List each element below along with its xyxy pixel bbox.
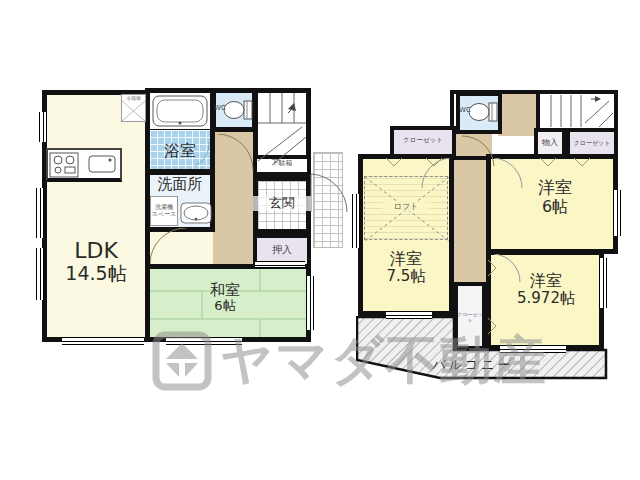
closet-door-chevron-4 [574, 158, 590, 167]
closet-door-chevron-1 [386, 158, 402, 167]
window-room75-bottom [386, 311, 432, 319]
closet-door-chevron-2 [426, 158, 442, 167]
second-floor-plan: WC 物入 クローゼット クローゼット 洋室 6帖 [0, 0, 640, 480]
room5972-name: 洋室 [494, 272, 598, 290]
window-room75-left [352, 194, 360, 248]
wc2-door-arc [462, 134, 496, 168]
room-label-yoshitsu-6: 洋室 6帖 [510, 178, 600, 216]
room6-size: 6帖 [510, 198, 600, 216]
balcony-label: バルコニー [408, 358, 538, 373]
room-label-monoire: 物入 [534, 138, 566, 147]
closet-door-chevron-3 [540, 158, 556, 167]
floorplan-page: { "watermark": { "brand": "ヤマダ不動産", "log… [0, 0, 640, 480]
wc-2f-label: WC [457, 106, 473, 114]
room-label-closet-right: クローゼット [566, 140, 618, 147]
loft-label: ロフト [382, 202, 430, 211]
room6-name: 洋室 [510, 178, 600, 198]
closet-door-chevron-6 [488, 318, 497, 334]
window-room6-right [613, 190, 621, 236]
window-room5972-bottom [500, 345, 566, 353]
window-room5972-right [599, 258, 607, 308]
room75-size: 7.5帖 [362, 268, 450, 285]
room-label-yoshitsu-75: 洋室 7.5帖 [362, 250, 450, 286]
room-label-closet-top-left: クローゼット [390, 137, 456, 144]
room75-name: 洋室 [362, 250, 450, 268]
stairs-2f-treads [541, 95, 613, 127]
room5972-size: 5.972帖 [494, 290, 598, 307]
room-label-closet-small: クローゼット [455, 312, 485, 324]
room-label-yoshitsu-5972: 洋室 5.972帖 [494, 272, 598, 308]
